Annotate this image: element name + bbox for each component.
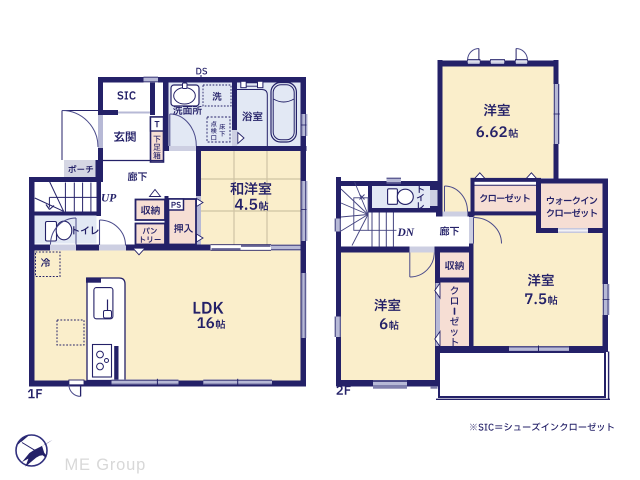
svg-text:UP: UP <box>101 193 117 205</box>
svg-text:DN: DN <box>397 227 415 239</box>
svg-text:ME Group: ME Group <box>65 456 147 474</box>
